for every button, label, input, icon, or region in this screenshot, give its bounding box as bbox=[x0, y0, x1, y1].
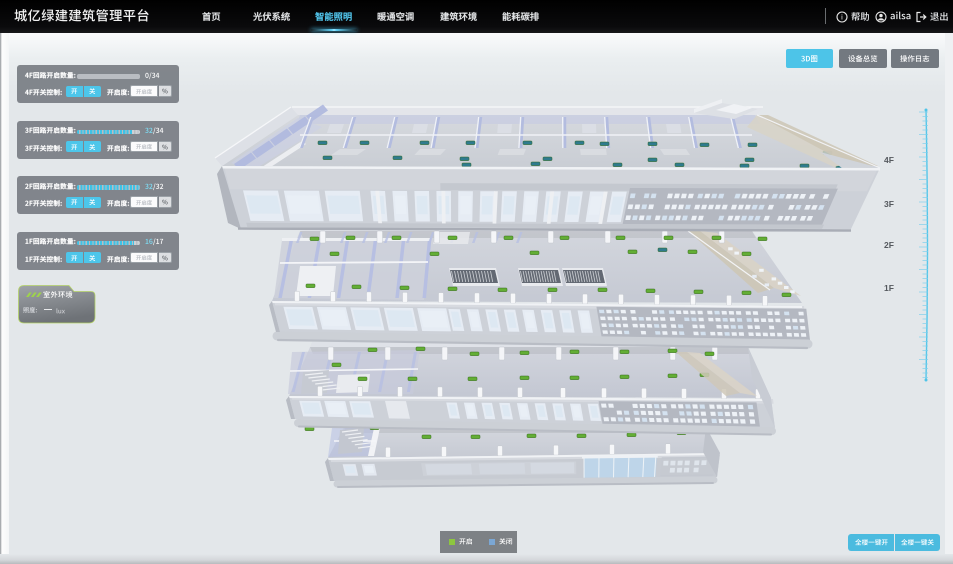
svg-text:i: i bbox=[841, 12, 843, 21]
